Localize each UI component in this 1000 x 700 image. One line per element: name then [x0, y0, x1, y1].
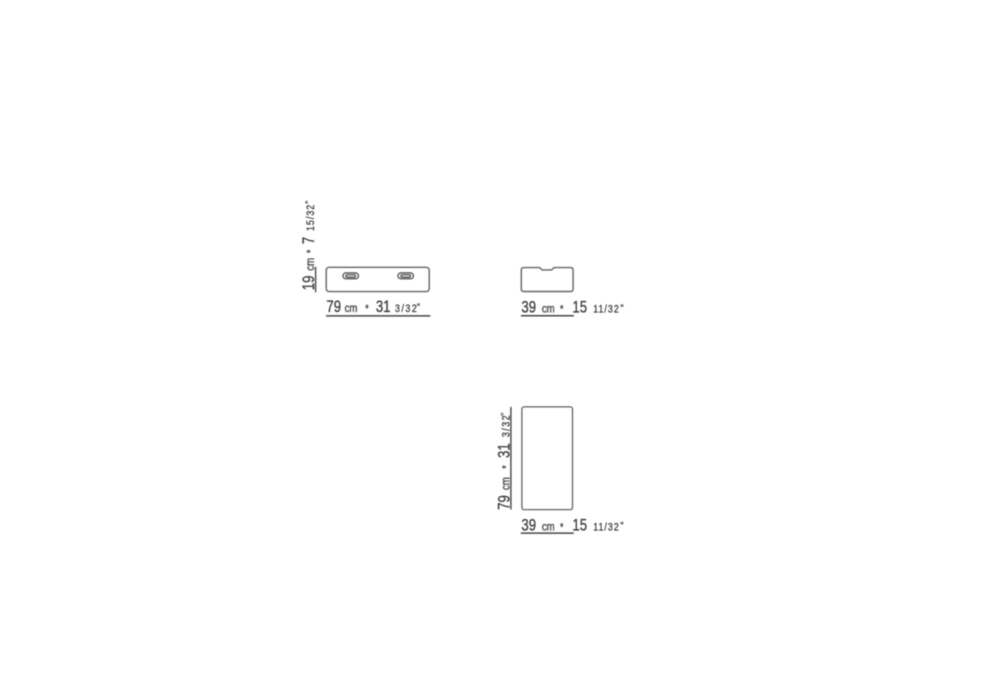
svg-text:*: *	[305, 250, 317, 254]
svg-text:*: *	[560, 304, 564, 316]
svg-text:*: *	[560, 521, 564, 533]
svg-text:cm: cm	[304, 258, 317, 271]
svg-text:": "	[621, 302, 624, 314]
svg-text:31: 31	[376, 297, 391, 316]
svg-text:11/32: 11/32	[593, 521, 620, 533]
svg-text:31: 31	[495, 443, 514, 458]
svg-text:3/32: 3/32	[395, 303, 418, 315]
svg-text:79: 79	[495, 495, 514, 510]
svg-text:": "	[499, 413, 511, 416]
svg-text:15: 15	[572, 516, 587, 535]
svg-text:15: 15	[572, 298, 587, 317]
svg-text:cm: cm	[542, 520, 555, 533]
svg-text:7: 7	[299, 237, 318, 244]
svg-text:*: *	[365, 303, 369, 315]
svg-text:15/32: 15/32	[305, 204, 317, 231]
svg-text:": "	[417, 302, 420, 314]
svg-text:cm: cm	[345, 302, 358, 315]
svg-text:39: 39	[521, 516, 536, 535]
svg-text:cm: cm	[542, 303, 555, 316]
svg-text:11/32: 11/32	[593, 304, 620, 316]
svg-text:39: 39	[521, 298, 536, 317]
svg-text:19: 19	[299, 276, 318, 291]
svg-text:": "	[304, 201, 316, 204]
svg-text:": "	[621, 520, 624, 532]
svg-text:79: 79	[326, 297, 341, 316]
svg-text:3/32: 3/32	[501, 414, 513, 437]
svg-text:*: *	[501, 465, 513, 469]
svg-text:cm: cm	[499, 477, 512, 490]
